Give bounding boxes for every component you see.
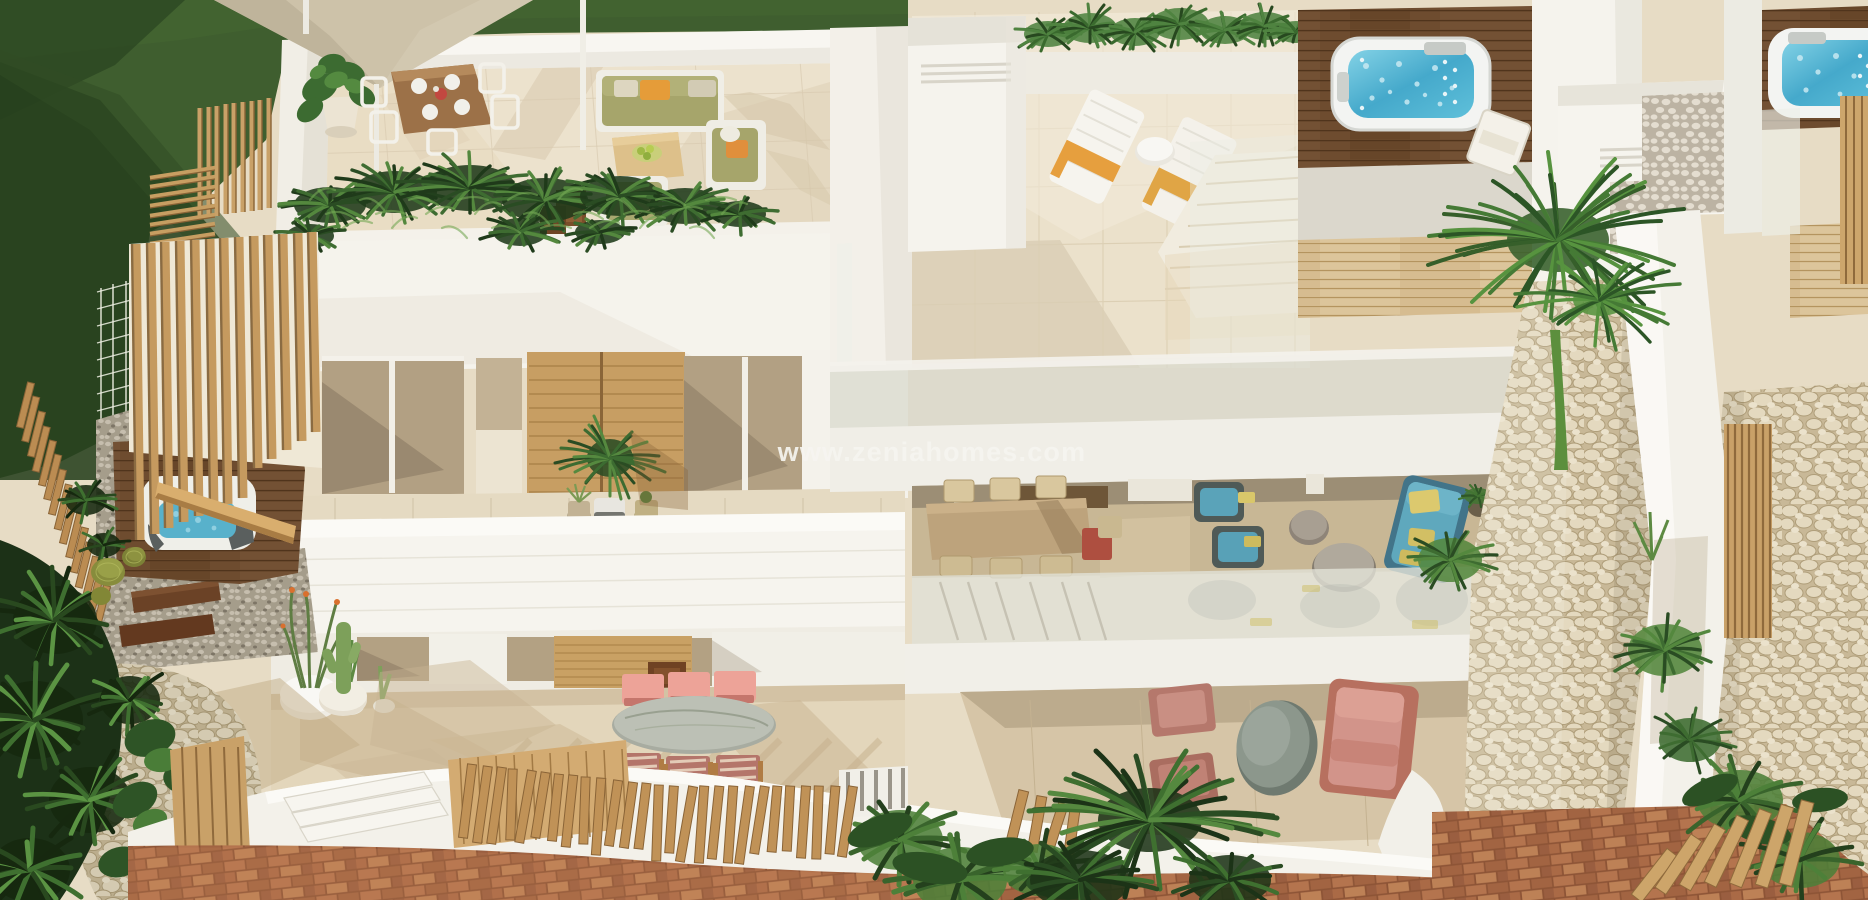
svg-text:www.zeniahomes.com: www.zeniahomes.com (777, 437, 1087, 467)
